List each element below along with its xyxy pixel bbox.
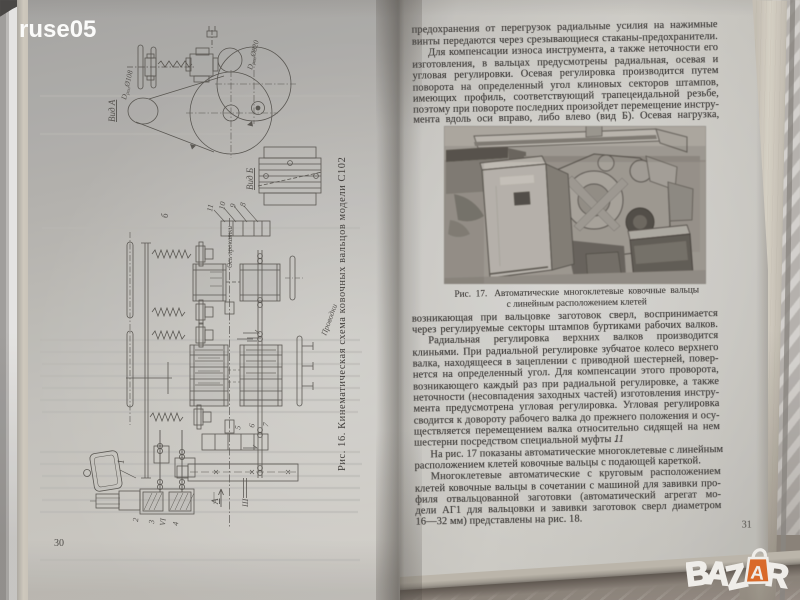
svg-text:A: A — [749, 562, 765, 584]
